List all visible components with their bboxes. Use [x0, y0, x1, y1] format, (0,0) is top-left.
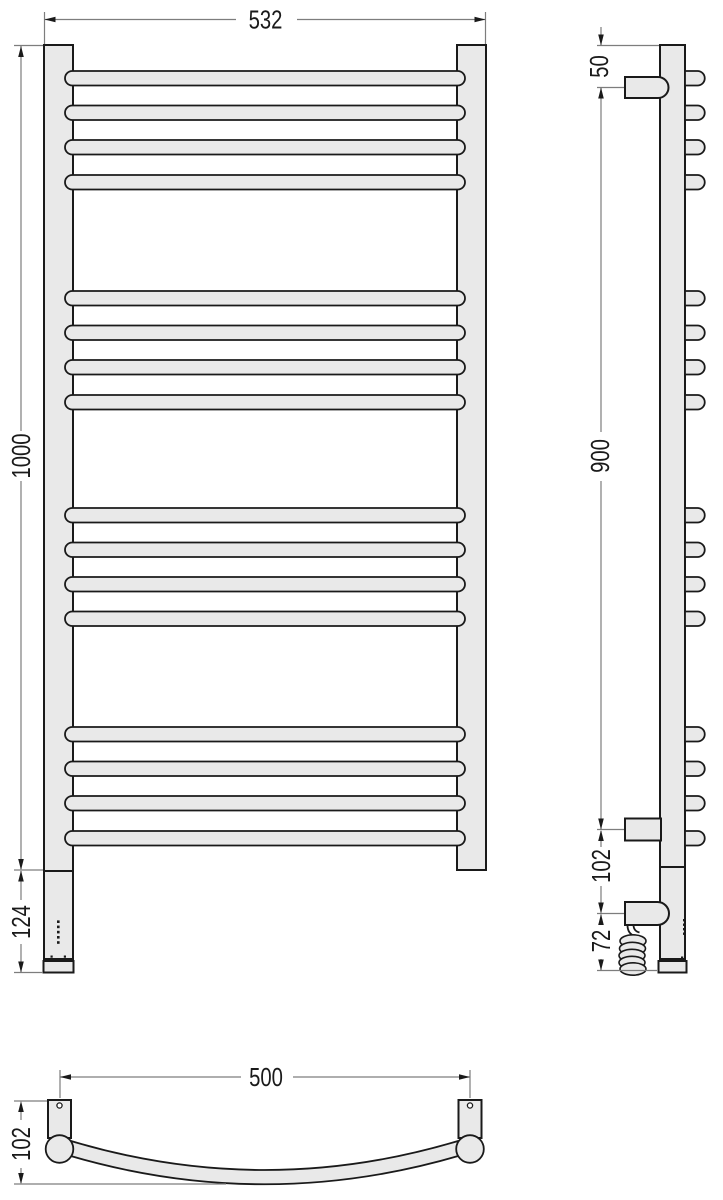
led-dot	[57, 941, 60, 944]
led-dot	[683, 933, 685, 935]
dim-front-width: 532	[249, 5, 283, 34]
housing-screw-dot	[681, 957, 683, 959]
towel-bar	[65, 175, 465, 190]
towel-bar	[65, 360, 465, 375]
dim-side-lower-gap: 102	[587, 849, 616, 883]
dim-side-top-offset: 50	[585, 55, 614, 78]
bar-end	[685, 360, 705, 375]
bottom-view: 500 102	[7, 1063, 484, 1185]
arrow-down	[18, 962, 24, 973]
front-right-post	[457, 45, 486, 870]
bar-end	[685, 175, 705, 190]
dim-front-bottom-section: 124	[7, 905, 36, 939]
bar-end	[685, 106, 705, 121]
towel-bar	[65, 727, 465, 742]
arrow-left	[60, 1074, 71, 1080]
led-dot	[57, 926, 60, 929]
bar-end	[685, 395, 705, 410]
dim-bottom-mount-distance: 500	[249, 1063, 283, 1092]
led-dot	[683, 928, 685, 930]
towel-bar	[65, 796, 465, 811]
arrow-up	[598, 88, 604, 99]
right-mount-hole	[467, 1103, 472, 1108]
bar-end	[685, 577, 705, 592]
front-width-dimension: 532	[45, 5, 486, 44]
bar-end	[685, 140, 705, 155]
towel-bar	[65, 71, 465, 86]
led-dot	[57, 920, 60, 923]
bar-end	[685, 831, 705, 846]
bowed-bar	[69, 1141, 460, 1184]
arrow-down	[598, 35, 604, 46]
side-view: 50 900 102 72	[585, 27, 705, 975]
towel-bar	[65, 543, 465, 558]
towel-bar	[65, 140, 465, 155]
towel-bar	[65, 106, 465, 121]
side-power-unit	[625, 902, 669, 925]
arrow-left	[45, 17, 56, 23]
towel-bar	[65, 577, 465, 592]
arrow-down	[18, 859, 24, 870]
bar-end	[685, 291, 705, 306]
front-towel-bars	[65, 71, 465, 846]
led-dot	[57, 931, 60, 934]
arrow-down	[598, 903, 604, 914]
front-height-dimension: 1000 124	[7, 46, 43, 973]
towel-bar	[65, 612, 465, 627]
bar-end	[685, 796, 705, 811]
towel-bar	[65, 508, 465, 523]
led-dot	[57, 936, 60, 939]
arrow-down	[18, 1173, 24, 1184]
towel-bar	[65, 326, 465, 341]
side-lower-wall-bracket	[625, 819, 661, 841]
arrow-right	[459, 1074, 470, 1080]
power-cable-coil	[619, 935, 646, 975]
bar-end	[685, 762, 705, 777]
side-top-wall-bracket	[625, 77, 669, 98]
side-post	[660, 45, 685, 867]
side-bar-ends	[685, 71, 705, 846]
dim-side-bracket-span: 900	[586, 439, 615, 473]
led-dot	[683, 919, 685, 921]
bar-end	[685, 727, 705, 742]
arrow-up	[18, 46, 24, 57]
arrow-up	[598, 830, 604, 841]
arrow-up	[18, 871, 24, 882]
dim-bottom-depth: 102	[7, 1127, 36, 1161]
front-bottom-cap	[44, 961, 74, 973]
left-post-section	[46, 1135, 74, 1163]
arrow-down	[598, 819, 604, 830]
housing-screw-dot	[51, 956, 53, 958]
arrow-down	[598, 960, 604, 971]
right-post-section	[456, 1135, 484, 1163]
towel-bar	[65, 395, 465, 410]
bar-end	[685, 508, 705, 523]
bar-end	[685, 543, 705, 558]
front-view: 532 1000 124	[7, 5, 486, 972]
front-left-post	[44, 45, 73, 871]
side-bottom-cap	[659, 961, 687, 973]
housing-screw-dot	[64, 956, 66, 958]
technical-drawing-towel-rail: 532 1000 124	[0, 0, 723, 1200]
arrow-up	[18, 1101, 24, 1112]
left-mount-hole	[57, 1103, 62, 1108]
dim-side-cable-offset: 72	[587, 930, 616, 953]
dim-front-height: 1000	[7, 433, 36, 478]
led-dot	[683, 924, 685, 926]
bar-end	[685, 326, 705, 341]
coil-loop	[620, 963, 646, 975]
towel-bar	[65, 831, 465, 846]
drawing-svg: 532 1000 124	[0, 0, 723, 1200]
arrow-right	[475, 17, 486, 23]
bottom-width-dimension: 500	[60, 1063, 470, 1098]
bar-end	[685, 71, 705, 86]
front-control-housing	[44, 871, 73, 959]
bar-end	[685, 612, 705, 627]
towel-bar	[65, 291, 465, 306]
arrow-up	[598, 914, 604, 925]
towel-bar	[65, 762, 465, 777]
